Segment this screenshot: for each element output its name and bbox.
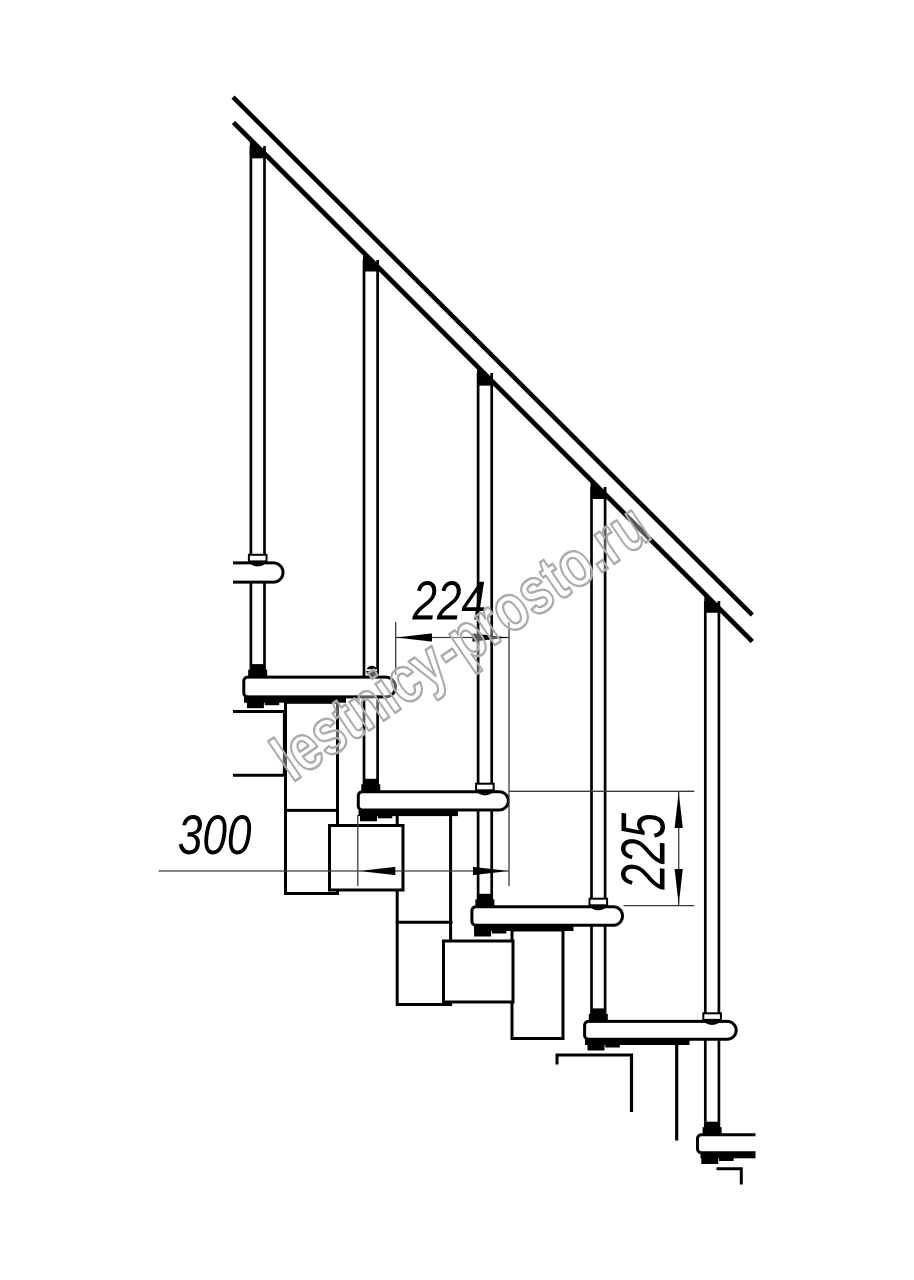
svg-text:225: 225 — [609, 812, 678, 890]
svg-text:300: 300 — [178, 803, 252, 866]
